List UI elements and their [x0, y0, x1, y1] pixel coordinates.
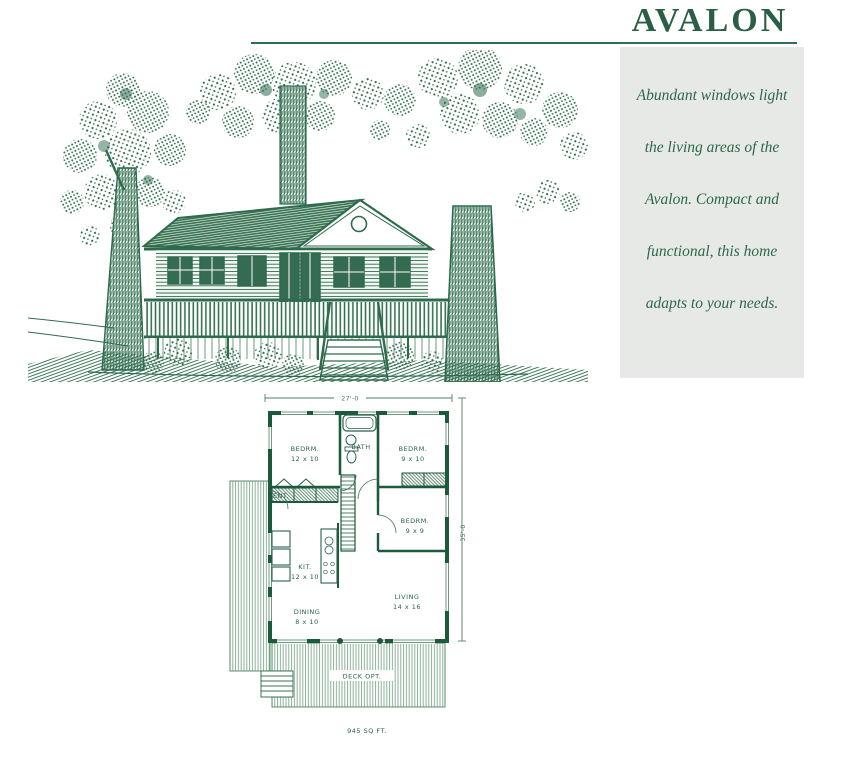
room-label-living: LIVING [395, 593, 420, 601]
counter [272, 549, 290, 565]
area-label: 945 SQ FT. [347, 727, 387, 735]
room-label-kitchen: KIT. [298, 563, 311, 571]
stair-hall [341, 475, 355, 551]
room-size-bedroom1: 12 x 10 [291, 455, 319, 463]
room-size-living: 14 x 16 [393, 603, 421, 611]
page-title: AVALON [620, 2, 800, 42]
description-panel: Abundant windows light the living areas … [620, 47, 804, 378]
deck-railing [144, 300, 464, 360]
room-size-dining: 8 x 10 [295, 618, 318, 626]
tree-trunk-right [445, 206, 500, 382]
room-label-entry: ENT. [273, 492, 289, 500]
deck-post [377, 638, 383, 644]
dim-width-label: 27'-0 [341, 396, 358, 403]
tree-trunk-center [280, 86, 306, 204]
description-line: adapts to your needs. [646, 295, 779, 313]
side-deck [230, 481, 270, 671]
counter [272, 567, 290, 581]
room-label-bedroom1: BEDRM. [291, 445, 320, 453]
room-size-kitchen: 12 x 10 [291, 573, 319, 581]
description-line: Abundant windows light [637, 87, 788, 105]
description-line: the living areas of the [645, 139, 780, 157]
room-size-bedroom2: 9 x 10 [401, 455, 424, 463]
description-line: functional, this home [647, 243, 777, 261]
house [144, 200, 464, 380]
dim-depth-label: 35'-0 [460, 524, 467, 541]
description-line: Avalon. Compact and [645, 191, 779, 209]
deck-stairs [261, 671, 293, 697]
toilet [347, 451, 356, 463]
floor-plan: 27'-0 35'-0 [215, 383, 475, 758]
room-size-bedroom3: 9 x 9 [406, 527, 425, 535]
house-illustration [28, 50, 588, 382]
title-rule [251, 42, 797, 44]
tree-canopy-right [370, 50, 588, 212]
room-label-deck: DECK OPT. [343, 673, 382, 681]
room-label-bedroom3: BEDRM. [401, 517, 430, 525]
room-label-dining: DINING [294, 608, 321, 616]
deck-post [337, 638, 343, 644]
room-label-bath: BATH [351, 443, 370, 451]
room-label-bedroom2: BEDRM. [399, 445, 428, 453]
gable-vent [352, 217, 367, 232]
refrigerator [272, 531, 290, 547]
